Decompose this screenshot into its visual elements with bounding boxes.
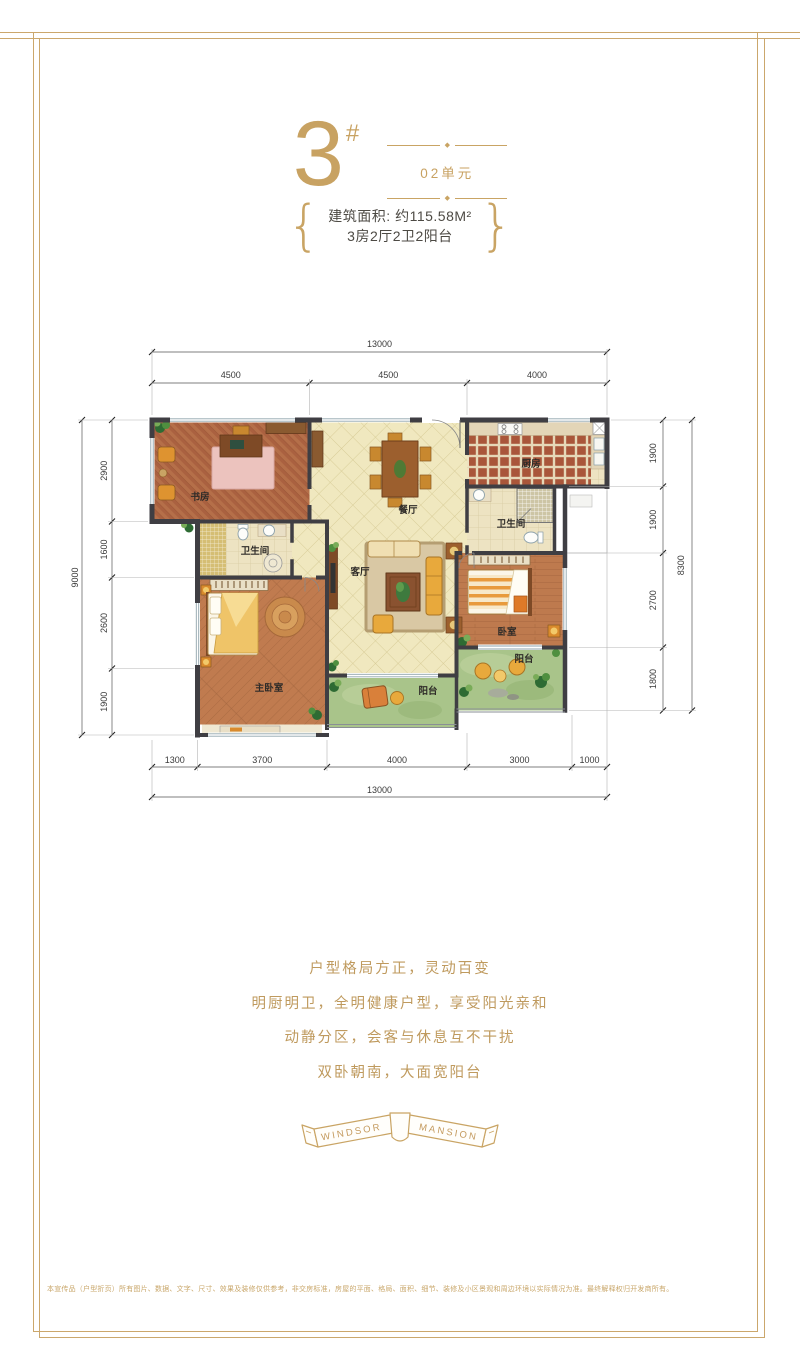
dim-right-2: 1900 <box>648 510 658 530</box>
dim-right-4: 1800 <box>648 669 658 689</box>
dim-right-3: 2700 <box>648 590 658 610</box>
dim-left-4: 1900 <box>99 692 109 712</box>
dim-bottom-4: 3000 <box>509 755 529 765</box>
room-label-kitchen: 厨房 <box>521 458 540 470</box>
brace-left: { <box>287 199 320 254</box>
floor-plan: 13000 4500 4500 4000 9000 2900 1600 2600… <box>70 335 730 815</box>
divider-line <box>387 198 439 199</box>
ribbon-svg: WINDSOR MANSION <box>300 1103 500 1163</box>
room-label-bath2: 卫生间 <box>497 518 526 530</box>
disclaimer-text: 本宣传品（户型折页）所有图片、数据、文字、尺寸、效果及装修仅供参考，非交房标准，… <box>47 1284 759 1294</box>
spec-block: { 建筑面积: 约115.58M² 3房2厅2卫2阳台 } <box>0 200 800 252</box>
unit-box: ◆ 02单元 ◆ <box>387 142 507 202</box>
room-label-balcony-center: 阳台 <box>418 685 438 697</box>
dim-right-1: 1900 <box>648 443 658 463</box>
dim-top-3: 4000 <box>527 370 547 380</box>
unit-label: 02单元 <box>387 149 507 195</box>
dim-left-total: 9000 <box>70 567 80 587</box>
block-number-digit: 3 <box>293 103 344 205</box>
brace-right: } <box>480 199 513 254</box>
divider-line <box>387 145 439 146</box>
spec-lines: 建筑面积: 约115.58M² 3房2厅2卫2阳台 <box>328 206 471 246</box>
dim-left-2: 1600 <box>99 539 109 559</box>
dim-top-2: 4500 <box>378 370 398 380</box>
dim-bottom-5: 1000 <box>579 755 599 765</box>
dim-top-1: 4500 <box>221 370 241 380</box>
room-label-balcony-right: 阳台 <box>514 653 534 665</box>
room-label-dining: 餐厅 <box>397 504 418 516</box>
dim-left-1: 2900 <box>99 461 109 481</box>
block-number: 3# <box>293 116 358 193</box>
dim-left-3: 2600 <box>99 613 109 633</box>
room-label-study: 书房 <box>190 491 209 503</box>
marketing-copy: 户型格局方正，灵动百变 明厨明卫，全明健康户型，享受阳光亲和 动静分区，会客与休… <box>0 952 800 1090</box>
marketing-line-3: 动静分区，会客与休息互不干扰 <box>0 1021 800 1056</box>
dim-right-total: 8300 <box>676 555 686 575</box>
diamond-ornament-icon: ◆ <box>445 142 450 149</box>
room-label-bath1: 卫生间 <box>241 545 270 557</box>
layout-line: 3房2厅2卫2阳台 <box>328 226 471 246</box>
dim-bottom-3: 4000 <box>387 755 407 765</box>
room-label-master: 主卧室 <box>255 682 284 694</box>
dim-bottom-2: 3700 <box>252 755 272 765</box>
dim-bottom-1: 1300 <box>165 755 185 765</box>
dim-bottom-total: 13000 <box>367 785 392 795</box>
dim-top-total: 13000 <box>367 339 392 349</box>
room-label-living: 客厅 <box>349 566 370 578</box>
ornament-divider-top: ◆ <box>387 142 507 149</box>
brand-ribbon: WINDSOR MANSION <box>300 1103 500 1163</box>
marketing-line-4: 双卧朝南，大面宽阳台 <box>0 1056 800 1091</box>
floor-plan-svg: 13000 4500 4500 4000 9000 2900 1600 2600… <box>70 335 730 815</box>
block-number-hash: # <box>346 120 359 147</box>
header: 3# ◆ 02单元 ◆ <box>0 116 800 202</box>
marketing-line-1: 户型格局方正，灵动百变 <box>0 952 800 987</box>
ribbon-knot <box>390 1113 410 1141</box>
divider-line <box>455 145 507 146</box>
area-line: 建筑面积: 约115.58M² <box>328 206 471 226</box>
marketing-line-2: 明厨明卫，全明健康户型，享受阳光亲和 <box>0 987 800 1022</box>
room-label-bedroom: 卧室 <box>497 626 517 638</box>
